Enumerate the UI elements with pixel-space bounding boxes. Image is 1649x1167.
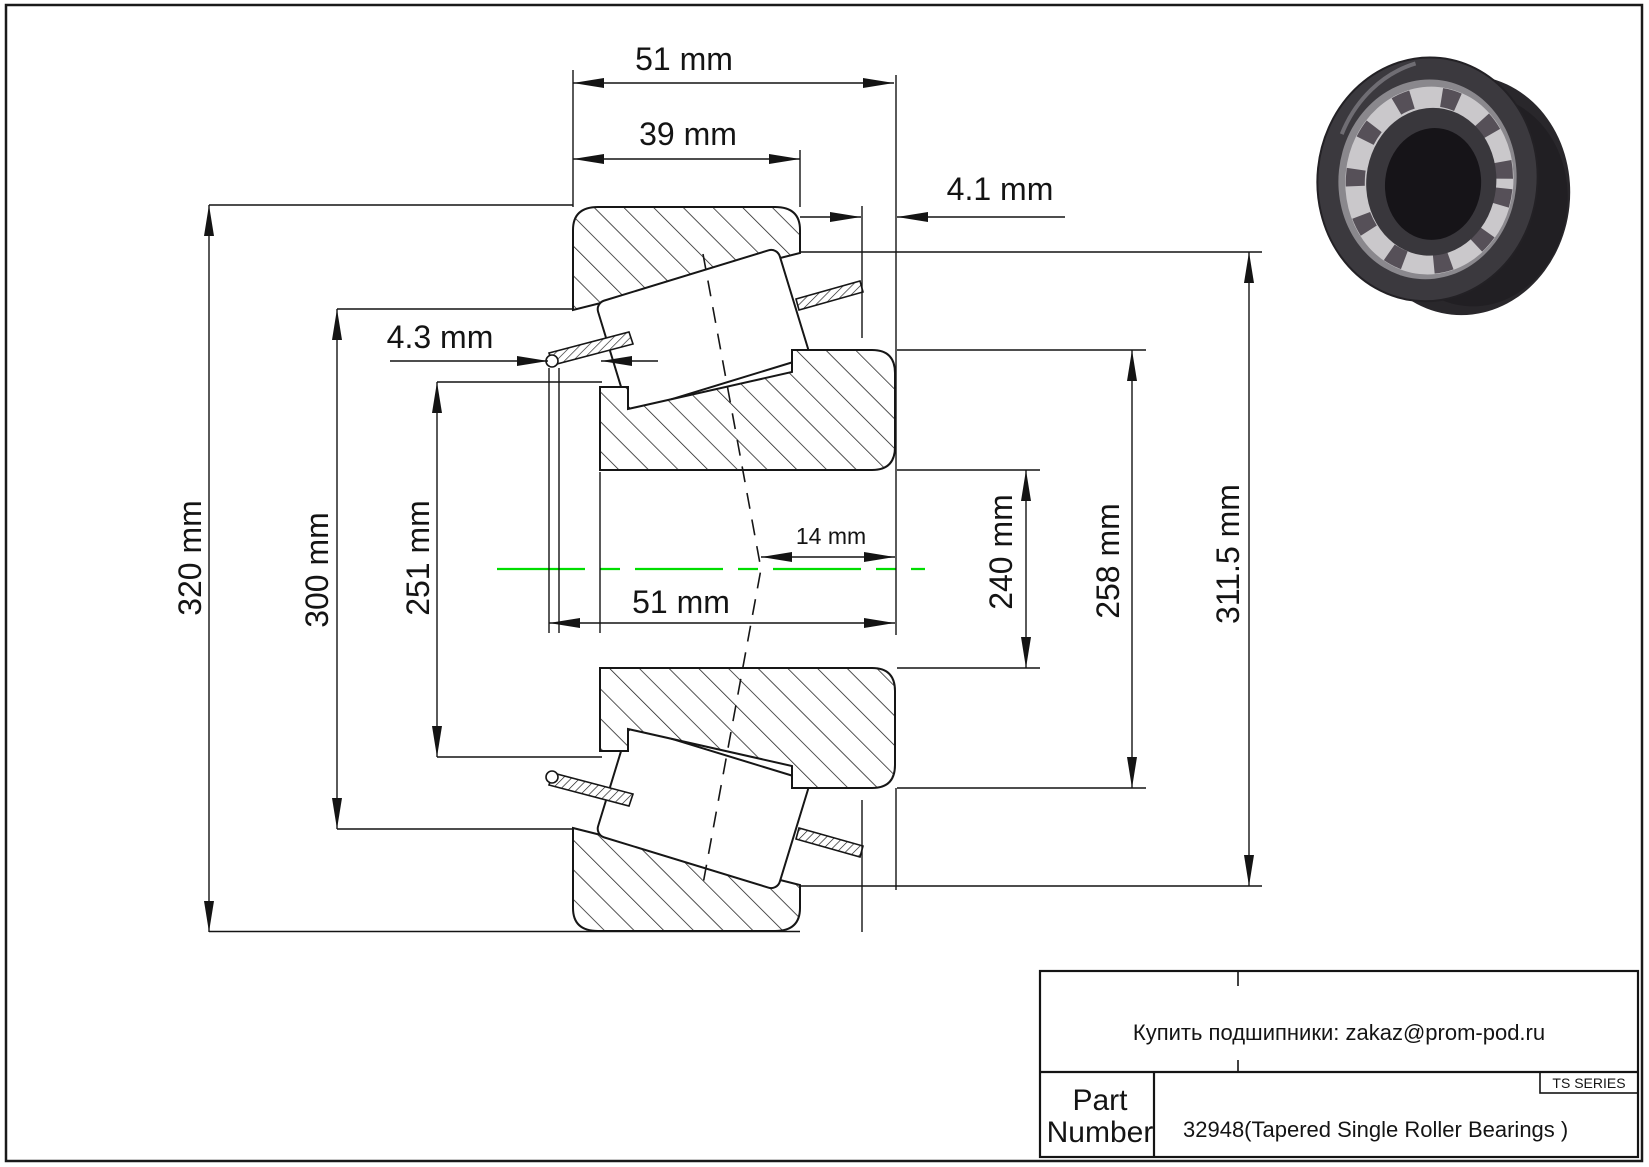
series-label: TS SERIES xyxy=(1552,1075,1625,1091)
technical-drawing: 51 mm 39 mm 4.1 mm 4.3 mm 320 mm 300 mm xyxy=(0,0,1649,1167)
title-block: Купить подшипники: zakaz@prom-pod.ru TS … xyxy=(1040,971,1638,1157)
dim-protrusion-left-label: 4.3 mm xyxy=(387,319,494,355)
dim-total-width-top: 51 mm xyxy=(573,41,894,83)
cage-curl-bottom xyxy=(546,771,558,783)
contact-text: Купить подшипники: zakaz@prom-pod.ru xyxy=(1133,1020,1545,1045)
dim-cone-back-diameter-label: 258 mm xyxy=(1090,503,1126,619)
part-number-label-line2: Number xyxy=(1047,1116,1154,1149)
dim-cone-width-bottom: 51 mm xyxy=(549,584,895,623)
dim-bore-diameter-label: 240 mm xyxy=(983,494,1019,610)
dim-cone-width-bottom-label: 51 mm xyxy=(632,584,730,620)
dim-cone-front-diameter-label: 251 mm xyxy=(400,500,436,616)
dim-protrusion-right-label: 4.1 mm xyxy=(947,171,1054,207)
dim-fit-diameter-label: 311.5 mm xyxy=(1210,484,1246,624)
dim-fit-diameter: 311.5 mm xyxy=(1210,252,1249,886)
dim-bore-diameter: 240 mm xyxy=(983,470,1026,668)
cage-top-right xyxy=(796,281,863,310)
dim-protrusion-right: 4.1 mm xyxy=(800,171,1065,217)
dim-outer-diameter: 320 mm xyxy=(172,205,209,932)
cage-bottom-right xyxy=(796,828,863,857)
dim-cup-width-label: 39 mm xyxy=(639,116,737,152)
bearing-photo xyxy=(1304,47,1583,326)
dim-cup-front-diameter-label: 300 mm xyxy=(299,512,335,628)
part-number-label-line1: Part xyxy=(1072,1084,1128,1117)
dim-roller-axis-offset-label: 14 mm xyxy=(796,523,866,549)
dim-cone-front-diameter: 251 mm xyxy=(400,382,437,757)
drawing-sheet: 51 mm 39 mm 4.1 mm 4.3 mm 320 mm 300 mm xyxy=(0,0,1649,1167)
dim-cone-back-diameter: 258 mm xyxy=(1090,350,1132,788)
part-number-value: 32948(Tapered Single Roller Bearings ) xyxy=(1183,1117,1568,1142)
dim-outer-diameter-label: 320 mm xyxy=(172,500,208,616)
dim-cup-front-diameter: 300 mm xyxy=(299,309,337,829)
dim-roller-axis-offset: 14 mm xyxy=(761,523,895,557)
dim-cup-width: 39 mm xyxy=(573,116,800,159)
dim-total-width-top-label: 51 mm xyxy=(635,41,733,77)
